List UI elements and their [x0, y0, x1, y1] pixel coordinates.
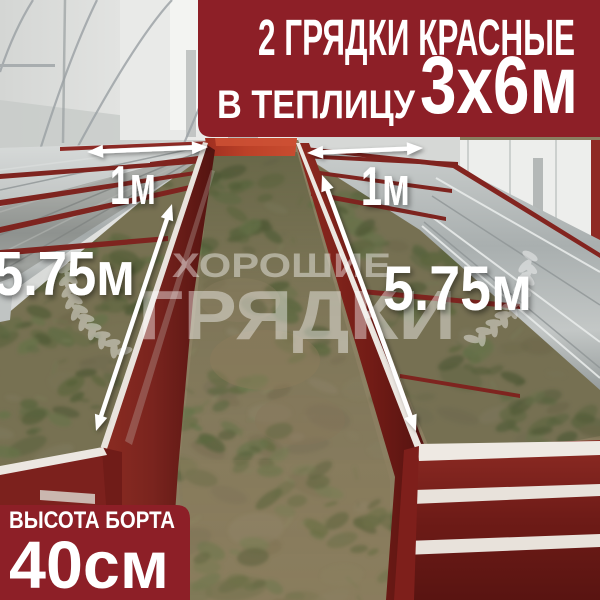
svg-text:5.75м: 5.75м — [383, 254, 532, 324]
svg-text:5.75м: 5.75м — [0, 240, 135, 309]
svg-text:В ТЕПЛИЦУ: В ТЕПЛИЦУ — [217, 83, 416, 127]
svg-text:40см: 40см — [9, 528, 169, 600]
svg-text:1м: 1м — [110, 154, 156, 216]
svg-text:3х6м: 3х6м — [420, 40, 578, 131]
svg-text:1м: 1м — [361, 155, 410, 217]
